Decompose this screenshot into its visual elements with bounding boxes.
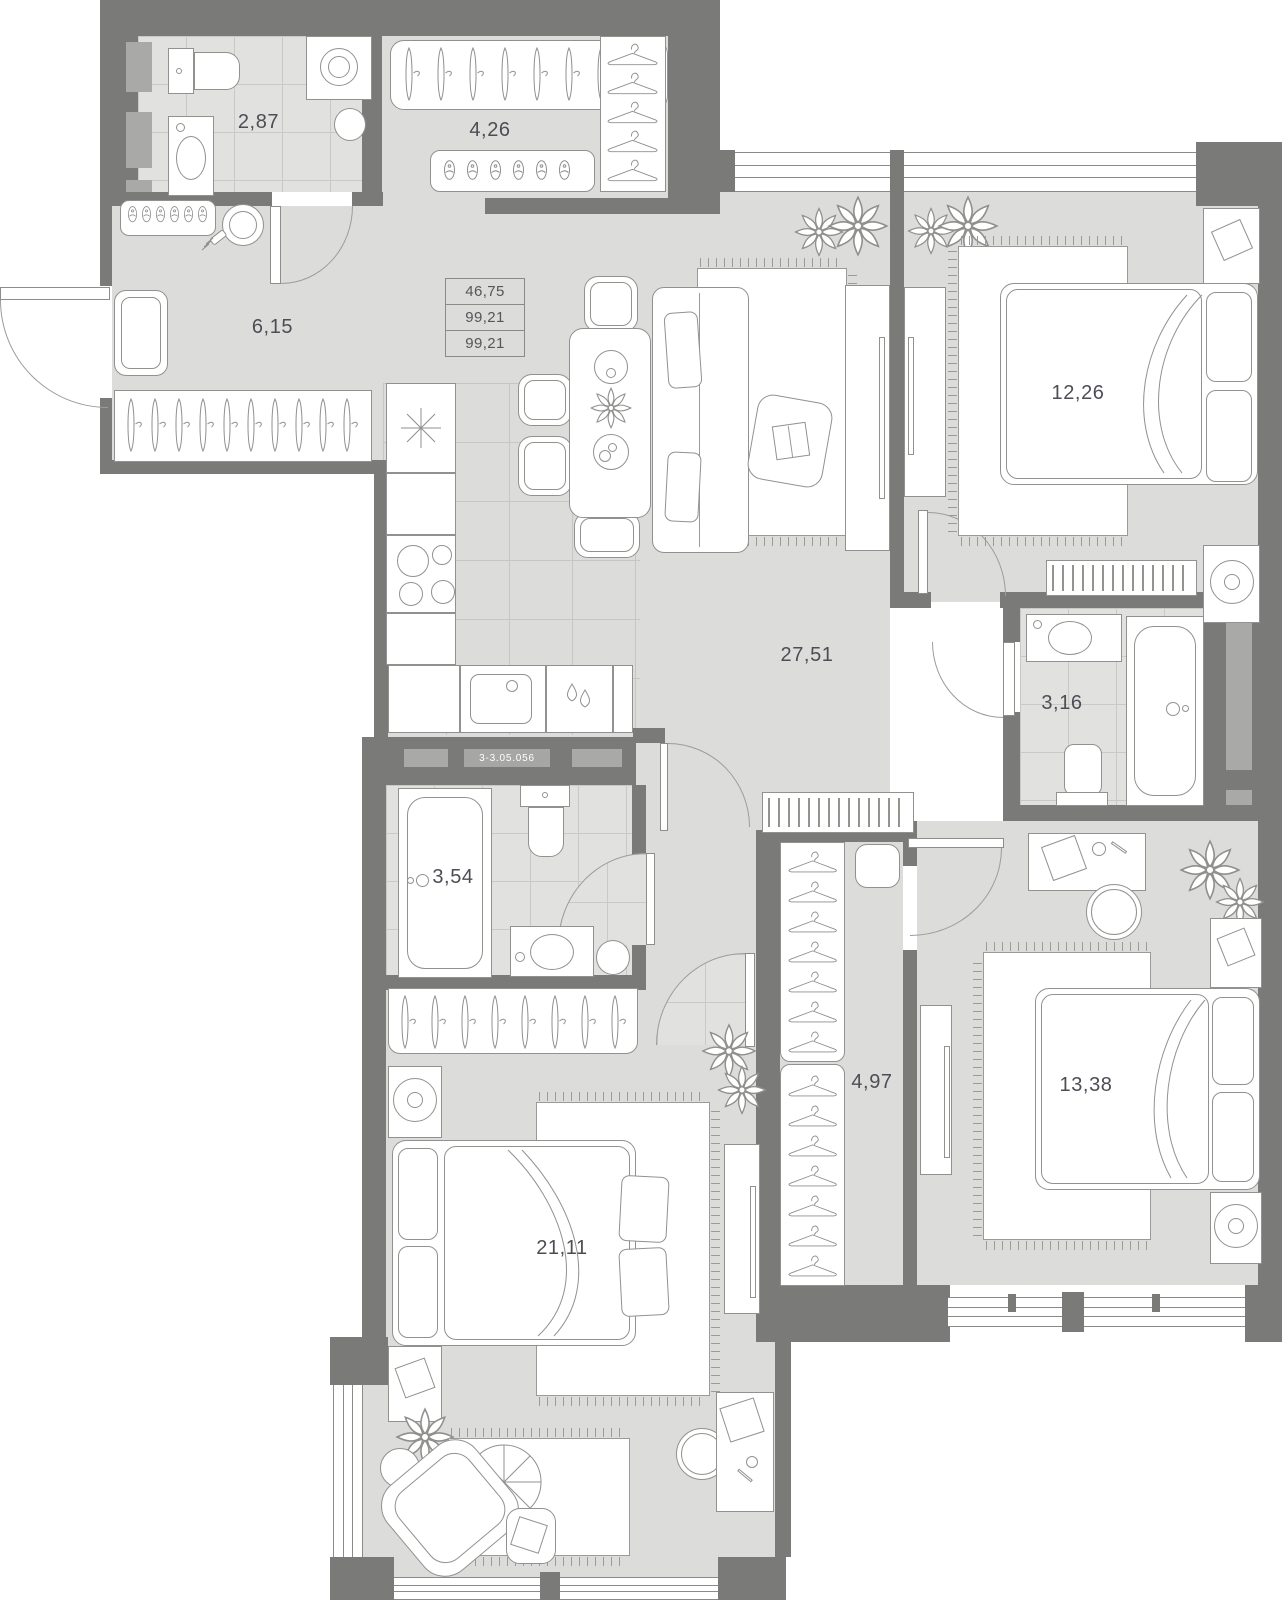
toilet-tank — [1056, 792, 1108, 806]
sofa-cushion — [664, 451, 702, 523]
kitchen-counter — [386, 613, 456, 665]
wall-segment — [1258, 206, 1282, 602]
sink-basin — [530, 934, 574, 970]
sink-tap — [1033, 620, 1042, 629]
hanger-icons — [786, 848, 842, 1058]
pouf — [855, 844, 900, 888]
wall-segment — [362, 785, 386, 1337]
wall-segment — [633, 728, 665, 743]
hanger-icons — [786, 1072, 842, 1282]
burner — [397, 545, 429, 577]
wall-segment — [756, 1285, 950, 1342]
kitchen-counter — [386, 473, 456, 535]
bed-bench — [618, 1175, 669, 1243]
wall-segment — [632, 785, 646, 855]
wall-segment — [100, 460, 388, 474]
window-mullion — [540, 1572, 560, 1600]
door-leaf — [646, 853, 655, 945]
pillow — [1212, 997, 1254, 1085]
wall-segment — [100, 0, 720, 36]
rug-fringe — [700, 258, 844, 267]
window — [948, 1297, 1245, 1327]
dining-chair-seat — [524, 380, 566, 420]
rug-fringe — [986, 1241, 1148, 1250]
toilet-button — [176, 68, 182, 74]
wall-segment — [100, 0, 138, 206]
tv-screen — [750, 1186, 756, 1298]
wall-segment — [901, 592, 931, 608]
door-swing — [932, 642, 1003, 718]
wall-segment — [720, 150, 735, 192]
rug-fringe — [539, 1397, 707, 1406]
wall-segment — [903, 950, 917, 1285]
rug-fringe — [961, 236, 1125, 245]
sink-basin — [176, 136, 206, 180]
pillow — [398, 1246, 438, 1338]
sink-basin — [1048, 621, 1092, 655]
wall-segment — [352, 192, 383, 206]
area-value: 46,75 — [446, 279, 524, 305]
door-leaf — [270, 206, 281, 284]
area-value: 99,21 — [446, 305, 524, 331]
desk-item — [1092, 842, 1106, 856]
washing-machine-drum — [328, 56, 350, 78]
rug-fringe — [986, 942, 1148, 951]
window — [904, 152, 1196, 192]
kitchen-counter — [388, 665, 460, 733]
room-area-label: 3,54 — [415, 864, 491, 890]
dining-chair-seat — [580, 518, 634, 552]
unit-code-badge: 3-3.05.056 — [464, 749, 550, 767]
room-area-label: 27,51 — [762, 642, 852, 668]
window-mullion — [1062, 1292, 1084, 1332]
door-mat-inner — [121, 297, 161, 369]
rug-fringe — [711, 1106, 720, 1392]
floor-plan: 2,87 4,26 6,15 — [0, 0, 1282, 1600]
bathtub-handle — [1166, 702, 1180, 716]
room-area-label: 13,38 — [1040, 1072, 1132, 1098]
area-value: 99,21 — [446, 331, 524, 356]
door-leaf — [918, 510, 928, 594]
plant — [826, 194, 890, 258]
radiator-grille — [768, 798, 908, 827]
wall-niche — [572, 749, 622, 767]
room-area-label: 3,16 — [1020, 690, 1104, 716]
toilet-bowl — [528, 807, 564, 857]
burner — [431, 580, 455, 604]
table-flower — [589, 386, 633, 430]
sink-tap — [176, 123, 185, 132]
wall-segment — [1003, 805, 1260, 821]
kitchen-sink-bowl — [470, 674, 532, 724]
bathtub-handle — [1182, 705, 1189, 712]
kitchen-hood-icon — [399, 406, 443, 450]
wall-partition-tv — [890, 150, 904, 608]
wall-segment — [1003, 608, 1020, 642]
room-area-label: 2,87 — [216, 109, 301, 135]
burner — [432, 545, 452, 565]
bathtub-handle — [407, 877, 414, 884]
tv-screen — [944, 1046, 950, 1158]
burner — [399, 582, 423, 606]
sofa-cushion — [663, 311, 702, 389]
plant — [716, 1064, 768, 1116]
hanging-clothes-icons — [398, 994, 632, 1050]
window-mullion — [1152, 1294, 1160, 1312]
rug-fringe — [973, 956, 982, 1236]
pillow — [1206, 292, 1252, 382]
wall-segment — [485, 198, 720, 214]
door-leaf — [1003, 642, 1015, 716]
room-area-label: 4,26 — [450, 117, 530, 143]
table-lamp-inner — [1228, 1218, 1244, 1234]
wall-corner-block — [330, 1557, 394, 1600]
entrance-door-swing — [0, 300, 108, 408]
rug-fringe — [539, 1092, 707, 1101]
window — [735, 152, 890, 192]
wall-niche — [404, 749, 448, 767]
wall-segment — [632, 943, 646, 990]
table-lamp-inner — [1224, 574, 1240, 590]
pillow — [1206, 390, 1252, 482]
rug-fringe — [948, 250, 957, 532]
desk-chair-inner — [1091, 889, 1137, 935]
laundry-basket — [596, 940, 630, 975]
wall-niche — [1226, 618, 1252, 770]
window — [333, 1385, 363, 1557]
toilet-bowl — [194, 52, 240, 90]
wall-segment — [668, 36, 720, 206]
wall-segment — [775, 1340, 791, 1557]
area-info-table: 46,75 99,21 99,21 — [445, 278, 525, 357]
plate-item — [608, 443, 617, 452]
room-area-label: 21,11 — [518, 1235, 606, 1261]
room-area-label: 6,15 — [230, 314, 315, 340]
toilet-button — [542, 792, 548, 798]
wall-niche — [126, 42, 152, 92]
toilet-bowl — [1064, 744, 1102, 796]
sink-tap — [515, 952, 525, 962]
sofa-backrest-line — [699, 293, 700, 547]
dining-chair-seat — [590, 282, 632, 326]
shoe-icons — [128, 206, 210, 224]
wall-segment — [1196, 142, 1282, 206]
plate — [593, 434, 629, 470]
mirror-inner — [229, 211, 257, 239]
window-mullion — [1008, 1294, 1016, 1312]
kitchen-tap — [506, 680, 518, 692]
pillow — [398, 1148, 438, 1240]
door-leaf — [908, 838, 1004, 848]
hanging-clothes-icons — [124, 397, 364, 455]
plate-item — [599, 450, 611, 462]
tv-screen — [908, 337, 914, 455]
wall-corner-block — [330, 1337, 388, 1385]
pillow — [1212, 1092, 1254, 1182]
entrance-door-leaf — [0, 287, 110, 300]
wall-niche — [126, 112, 152, 168]
wall-corner-block — [1245, 1285, 1282, 1342]
dining-chair-seat — [524, 442, 566, 490]
bed-bench — [618, 1247, 669, 1317]
water-drop-icon — [562, 682, 598, 718]
kitchen-counter — [613, 665, 633, 733]
plate — [594, 350, 628, 384]
plate-item — [606, 368, 616, 378]
table-lamp-inner — [407, 1092, 423, 1108]
radiator-grille — [1052, 565, 1191, 591]
laundry-basket — [334, 108, 366, 141]
tv-screen — [879, 337, 885, 499]
desk-item — [746, 1456, 758, 1468]
rug-fringe — [961, 537, 1125, 546]
door-leaf — [660, 743, 668, 831]
hanger-icons — [605, 40, 663, 190]
wall-segment — [1003, 712, 1020, 808]
room-area-label: 4,97 — [834, 1069, 910, 1095]
room-area-label: 12,26 — [1032, 380, 1124, 406]
wall-segment — [100, 206, 112, 286]
hairdryer-icon — [198, 226, 232, 256]
wall-corner-block — [718, 1557, 786, 1600]
shoe-icons — [444, 160, 584, 182]
